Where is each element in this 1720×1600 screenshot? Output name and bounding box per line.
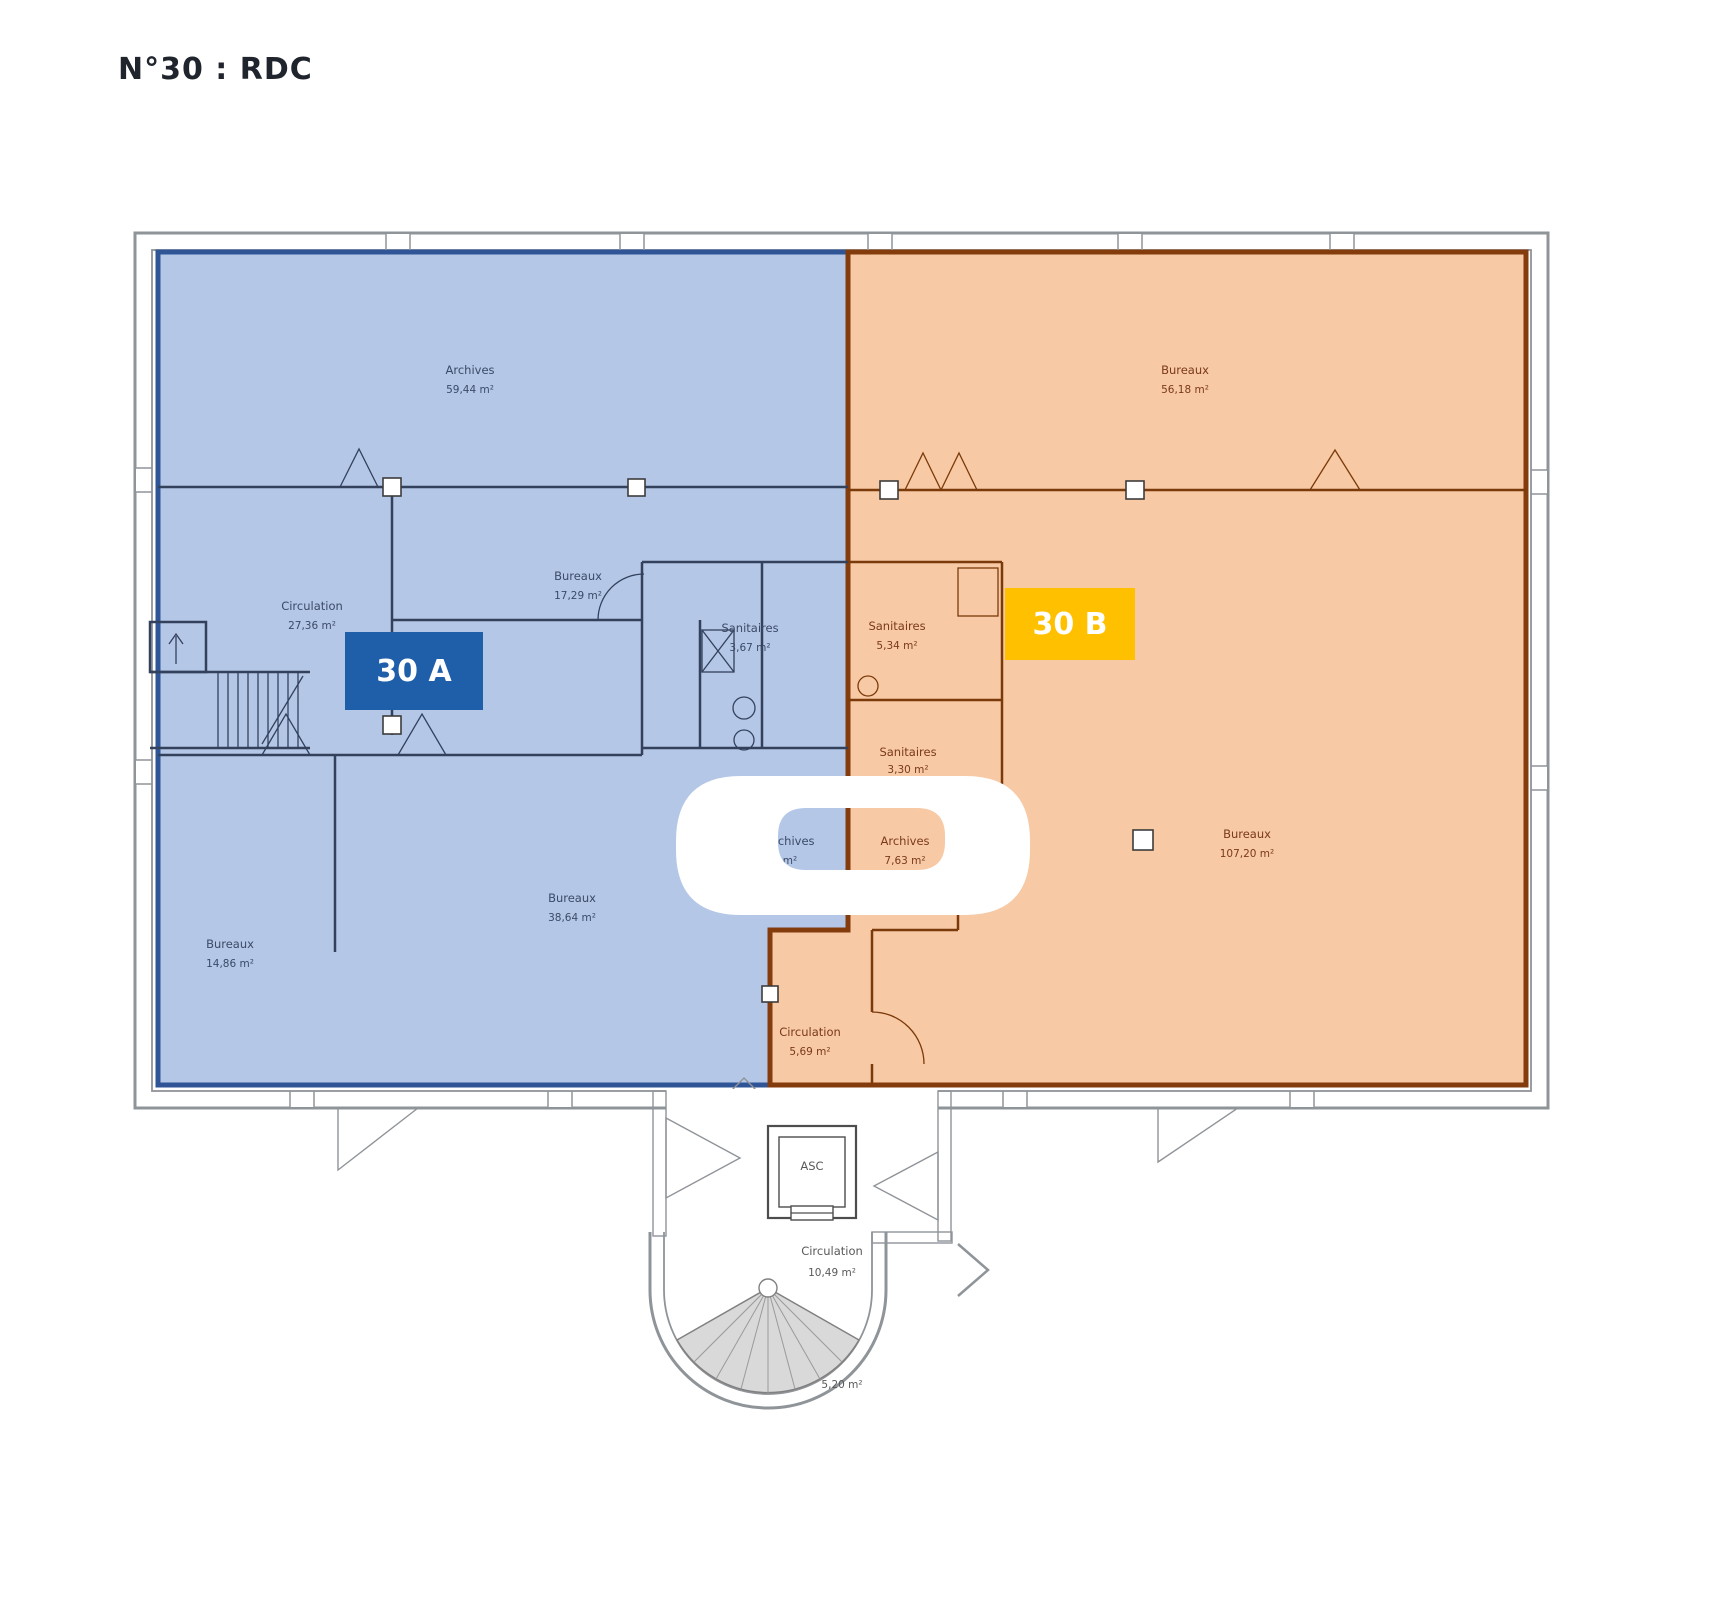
svg-text:7,63 m²: 7,63 m² (884, 855, 925, 867)
svg-text:17,29 m²: 17,29 m² (554, 590, 602, 602)
elevator-label: ASC (800, 1159, 823, 1173)
svg-text:Sanitaires: Sanitaires (879, 745, 936, 759)
svg-text:Bureaux: Bureaux (548, 891, 596, 905)
spiral-stair (677, 1279, 859, 1393)
svg-text:38,64 m²: 38,64 m² (548, 912, 596, 924)
svg-text:14,86 m²: 14,86 m² (206, 958, 254, 970)
floor-plan-drawing: Archives 59,44 m² Bureaux 56,18 m² Circu… (0, 0, 1720, 1600)
svg-text:59,44 m²: 59,44 m² (446, 384, 494, 396)
svg-text:Archives: Archives (880, 834, 929, 848)
svg-text:Sanitaires: Sanitaires (868, 619, 925, 633)
zone-30b-area (770, 252, 1526, 1085)
svg-text:5,34 m²: 5,34 m² (876, 640, 917, 652)
svg-text:56,18 m²: 56,18 m² (1161, 384, 1209, 396)
svg-text:Bureaux: Bureaux (206, 937, 254, 951)
svg-text:ASC: ASC (800, 1159, 823, 1173)
zone-30a-area (158, 252, 848, 1085)
zone-badge-30b: 30 B (1005, 588, 1135, 660)
svg-text:5,20 m²: 5,20 m² (821, 1379, 862, 1391)
svg-text:Bureaux: Bureaux (554, 569, 602, 583)
svg-text:Archives: Archives (445, 363, 494, 377)
svg-text:27,36 m²: 27,36 m² (288, 620, 336, 632)
svg-text:3,67 m²: 3,67 m² (729, 642, 770, 654)
floor-plan-page: N°30 : RDC (0, 0, 1720, 1600)
svg-text:3,30 m²: 3,30 m² (887, 764, 928, 776)
svg-text:107,20 m²: 107,20 m² (1220, 848, 1275, 860)
svg-text:Bureaux: Bureaux (1161, 363, 1209, 377)
zone-badge-30a: 30 A (345, 632, 483, 710)
elevator (768, 1126, 856, 1220)
svg-text:Bureaux: Bureaux (1223, 827, 1271, 841)
room-label-circulation-entry: Circulation 10,49 m² (801, 1244, 863, 1279)
svg-text:Sanitaires: Sanitaires (721, 621, 778, 635)
room-label-turret-area: 5,20 m² (821, 1379, 862, 1391)
svg-text:10,49 m²: 10,49 m² (808, 1267, 856, 1279)
svg-text:5,69 m²: 5,69 m² (789, 1046, 830, 1058)
svg-text:Circulation: Circulation (779, 1025, 841, 1039)
svg-text:Circulation: Circulation (801, 1244, 863, 1258)
svg-text:Circulation: Circulation (281, 599, 343, 613)
